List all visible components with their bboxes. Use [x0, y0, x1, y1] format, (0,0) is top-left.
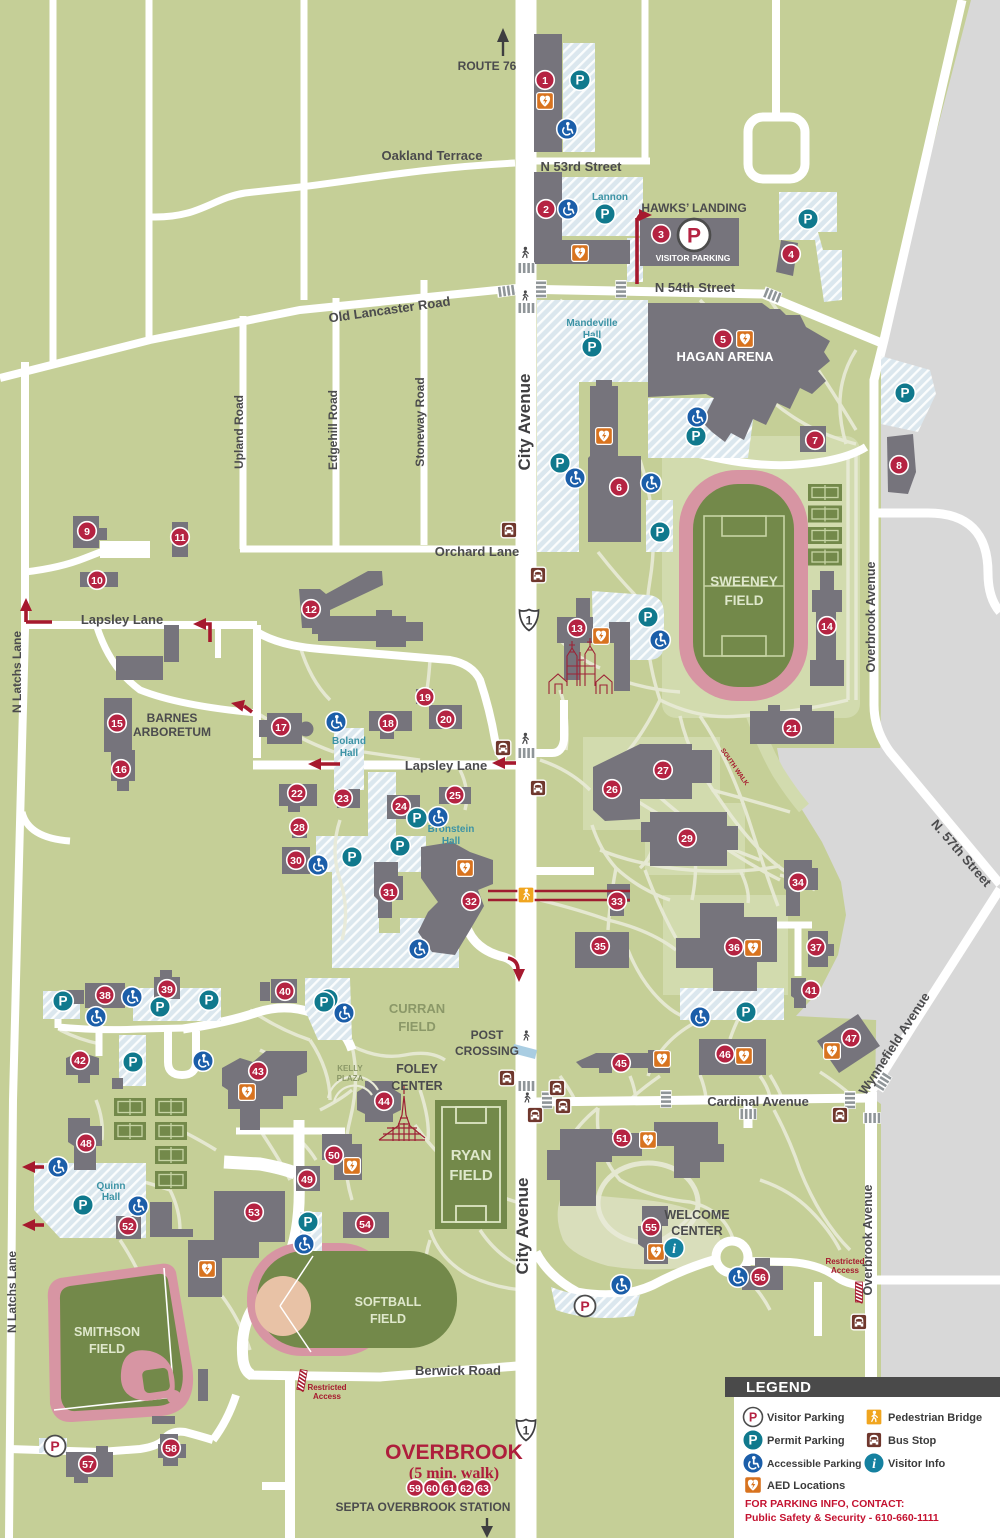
svg-text:P: P	[741, 1005, 750, 1020]
svg-text:12: 12	[305, 604, 317, 616]
svg-text:FIELD: FIELD	[449, 1167, 492, 1184]
svg-text:37: 37	[810, 942, 822, 954]
svg-text:39: 39	[161, 984, 173, 996]
svg-text:RYAN: RYAN	[451, 1147, 492, 1164]
svg-text:Overbrook Avenue: Overbrook Avenue	[861, 1184, 875, 1295]
svg-text:P: P	[204, 993, 213, 1008]
svg-text:33: 33	[611, 896, 623, 908]
svg-text:46: 46	[719, 1049, 731, 1061]
svg-text:36: 36	[728, 942, 740, 954]
svg-text:6: 6	[616, 482, 622, 494]
svg-text:21: 21	[786, 723, 798, 735]
svg-text:11: 11	[174, 532, 185, 544]
svg-text:SWEENEY: SWEENEY	[710, 574, 778, 589]
svg-text:Hall: Hall	[340, 748, 359, 759]
svg-text:Permit Parking: Permit Parking	[767, 1435, 845, 1447]
svg-text:58: 58	[165, 1443, 177, 1455]
svg-text:P: P	[58, 994, 67, 1009]
svg-text:27: 27	[657, 765, 669, 777]
svg-text:SOFTBALL: SOFTBALL	[355, 1295, 422, 1309]
svg-text:32: 32	[465, 896, 477, 908]
svg-text:Lapsley Lane: Lapsley Lane	[81, 612, 163, 627]
svg-text:FIELD: FIELD	[398, 1019, 436, 1034]
svg-text:10: 10	[91, 575, 103, 587]
svg-text:P: P	[50, 1438, 59, 1454]
svg-text:P: P	[78, 1198, 87, 1213]
svg-text:KELLY: KELLY	[337, 1064, 363, 1073]
svg-text:20: 20	[440, 714, 452, 726]
svg-text:FIELD: FIELD	[89, 1342, 125, 1356]
svg-text:P: P	[347, 850, 356, 865]
svg-text:P: P	[155, 1000, 164, 1015]
svg-text:62: 62	[460, 1483, 472, 1495]
svg-text:Restricted: Restricted	[307, 1383, 346, 1392]
svg-text:FIELD: FIELD	[725, 593, 764, 608]
svg-text:AED Locations: AED Locations	[767, 1480, 845, 1492]
svg-text:Stoneway Road: Stoneway Road	[413, 377, 427, 466]
svg-text:P: P	[687, 225, 701, 248]
svg-text:Boland: Boland	[332, 736, 366, 747]
svg-text:Overbrook Avenue: Overbrook Avenue	[864, 561, 878, 672]
svg-text:9: 9	[84, 526, 90, 538]
svg-text:Hall: Hall	[102, 1192, 121, 1203]
svg-text:56: 56	[754, 1272, 766, 1284]
svg-text:P: P	[575, 73, 584, 88]
svg-text:Berwick Road: Berwick Road	[415, 1363, 501, 1378]
svg-text:29: 29	[681, 833, 693, 845]
svg-text:43: 43	[252, 1066, 264, 1078]
svg-text:52: 52	[122, 1221, 134, 1233]
svg-text:Oakland Terrace: Oakland Terrace	[382, 148, 483, 163]
svg-text:49: 49	[301, 1174, 313, 1186]
svg-text:50: 50	[328, 1150, 340, 1162]
svg-text:Pedestrian Bridge: Pedestrian Bridge	[888, 1412, 982, 1424]
svg-text:1: 1	[523, 1423, 530, 1437]
svg-text:PLAZA: PLAZA	[337, 1074, 364, 1083]
svg-text:2: 2	[543, 204, 549, 216]
svg-text:Hall: Hall	[442, 836, 461, 847]
svg-text:23: 23	[337, 793, 349, 805]
svg-text:CROSSING: CROSSING	[455, 1044, 519, 1058]
svg-text:P: P	[580, 1298, 589, 1314]
svg-text:53: 53	[248, 1207, 260, 1219]
svg-text:Public Safety & Security - 610: Public Safety & Security - 610-660-1111	[745, 1512, 939, 1524]
svg-text:FOLEY: FOLEY	[396, 1062, 438, 1076]
svg-text:Access: Access	[831, 1266, 860, 1275]
svg-text:P: P	[749, 1411, 757, 1425]
svg-text:HAGAN ARENA: HAGAN ARENA	[676, 349, 774, 364]
svg-text:LEGEND: LEGEND	[746, 1379, 812, 1396]
svg-text:57: 57	[82, 1459, 94, 1471]
svg-text:24: 24	[395, 801, 407, 813]
svg-text:8: 8	[896, 460, 902, 472]
svg-text:N 53rd Street: N 53rd Street	[541, 159, 623, 174]
svg-text:1: 1	[526, 613, 533, 627]
svg-text:1: 1	[542, 75, 548, 87]
svg-text:3: 3	[658, 229, 664, 241]
svg-text:N 54th Street: N 54th Street	[655, 280, 736, 295]
svg-text:14: 14	[821, 621, 833, 633]
svg-text:34: 34	[792, 877, 804, 889]
svg-text:P: P	[803, 212, 812, 227]
svg-text:Lapsley Lane: Lapsley Lane	[405, 758, 487, 773]
svg-text:19: 19	[419, 692, 431, 704]
svg-text:17: 17	[275, 722, 287, 734]
svg-text:ROUTE 76: ROUTE 76	[458, 59, 517, 73]
svg-text:Edgehill Road: Edgehill Road	[326, 390, 340, 470]
svg-text:P: P	[643, 610, 652, 625]
svg-text:54: 54	[359, 1219, 371, 1231]
svg-text:61: 61	[443, 1483, 455, 1495]
svg-text:BARNES: BARNES	[147, 711, 198, 725]
svg-text:P: P	[128, 1055, 137, 1070]
svg-text:Restricted: Restricted	[825, 1257, 864, 1266]
svg-text:Lannon: Lannon	[592, 192, 628, 203]
svg-text:22: 22	[291, 788, 303, 800]
svg-text:5: 5	[720, 334, 726, 346]
svg-text:Accessible Parking: Accessible Parking	[767, 1459, 861, 1470]
svg-text:42: 42	[74, 1055, 86, 1067]
svg-text:P: P	[395, 839, 404, 854]
svg-text:Upland Road: Upland Road	[232, 395, 246, 469]
svg-text:POST: POST	[471, 1028, 504, 1042]
svg-text:P: P	[655, 525, 664, 540]
svg-text:City Avenue: City Avenue	[513, 1178, 532, 1275]
svg-text:CENTER: CENTER	[391, 1079, 442, 1093]
svg-text:SMITHSON: SMITHSON	[74, 1325, 140, 1339]
svg-text:40: 40	[279, 986, 291, 998]
svg-text:26: 26	[606, 784, 618, 796]
svg-text:FIELD: FIELD	[370, 1312, 406, 1326]
svg-text:16: 16	[115, 764, 127, 776]
svg-text:48: 48	[80, 1138, 92, 1150]
svg-text:55: 55	[645, 1222, 657, 1234]
svg-text:ARBORETUM: ARBORETUM	[133, 725, 211, 739]
svg-text:WELCOME: WELCOME	[664, 1208, 729, 1222]
svg-text:CURRAN: CURRAN	[389, 1001, 445, 1016]
svg-text:P: P	[691, 429, 700, 444]
svg-text:25: 25	[449, 790, 461, 802]
svg-text:30: 30	[290, 855, 302, 867]
svg-text:P: P	[303, 1215, 312, 1230]
svg-text:Orchard Lane: Orchard Lane	[435, 544, 520, 559]
svg-text:45: 45	[615, 1058, 627, 1070]
svg-text:CENTER: CENTER	[671, 1224, 722, 1238]
svg-text:Visitor Info: Visitor Info	[888, 1458, 946, 1470]
svg-text:35: 35	[594, 941, 606, 953]
svg-text:Visitor Parking: Visitor Parking	[767, 1412, 844, 1424]
svg-text:51: 51	[616, 1133, 628, 1145]
svg-text:59: 59	[409, 1483, 421, 1495]
svg-text:HAWKS’ LANDING: HAWKS’ LANDING	[641, 201, 746, 215]
svg-text:OVERBROOK: OVERBROOK	[385, 1441, 523, 1464]
svg-text:P: P	[900, 386, 909, 401]
svg-text:15: 15	[111, 718, 123, 730]
svg-text:i: i	[872, 1457, 876, 1472]
svg-text:Bus Stop: Bus Stop	[888, 1435, 937, 1447]
svg-text:63: 63	[477, 1483, 489, 1495]
svg-text:FOR PARKING INFO, CONTACT:: FOR PARKING INFO, CONTACT:	[745, 1498, 904, 1510]
svg-text:60: 60	[426, 1483, 438, 1495]
svg-text:P: P	[555, 456, 564, 471]
svg-text:13: 13	[571, 623, 583, 635]
svg-text:Mandeville: Mandeville	[566, 318, 618, 329]
svg-text:31: 31	[383, 887, 395, 899]
svg-text:Cardinal Avenue: Cardinal Avenue	[707, 1094, 809, 1109]
svg-text:i: i	[672, 1242, 676, 1257]
svg-text:P: P	[412, 811, 421, 826]
svg-text:44: 44	[378, 1096, 390, 1108]
svg-text:SEPTA OVERBROOK STATION: SEPTA OVERBROOK STATION	[336, 1500, 511, 1514]
svg-text:4: 4	[788, 249, 794, 261]
svg-text:P: P	[587, 340, 596, 355]
svg-text:18: 18	[382, 718, 394, 730]
svg-text:City Avenue: City Avenue	[515, 374, 534, 471]
svg-text:N Latchs Lane: N Latchs Lane	[10, 631, 24, 713]
svg-text:N Latchs Lane: N Latchs Lane	[5, 1251, 19, 1333]
svg-text:41: 41	[805, 985, 817, 997]
svg-text:Access: Access	[313, 1392, 342, 1401]
svg-text:VISITOR PARKING: VISITOR PARKING	[656, 253, 731, 263]
svg-text:47: 47	[845, 1033, 857, 1045]
svg-text:28: 28	[293, 822, 305, 834]
svg-text:Quinn: Quinn	[97, 1181, 126, 1192]
svg-text:P: P	[748, 1433, 757, 1448]
svg-text:P: P	[319, 995, 328, 1010]
svg-text:7: 7	[812, 435, 818, 447]
svg-text:P: P	[600, 207, 609, 222]
svg-text:38: 38	[99, 990, 111, 1002]
